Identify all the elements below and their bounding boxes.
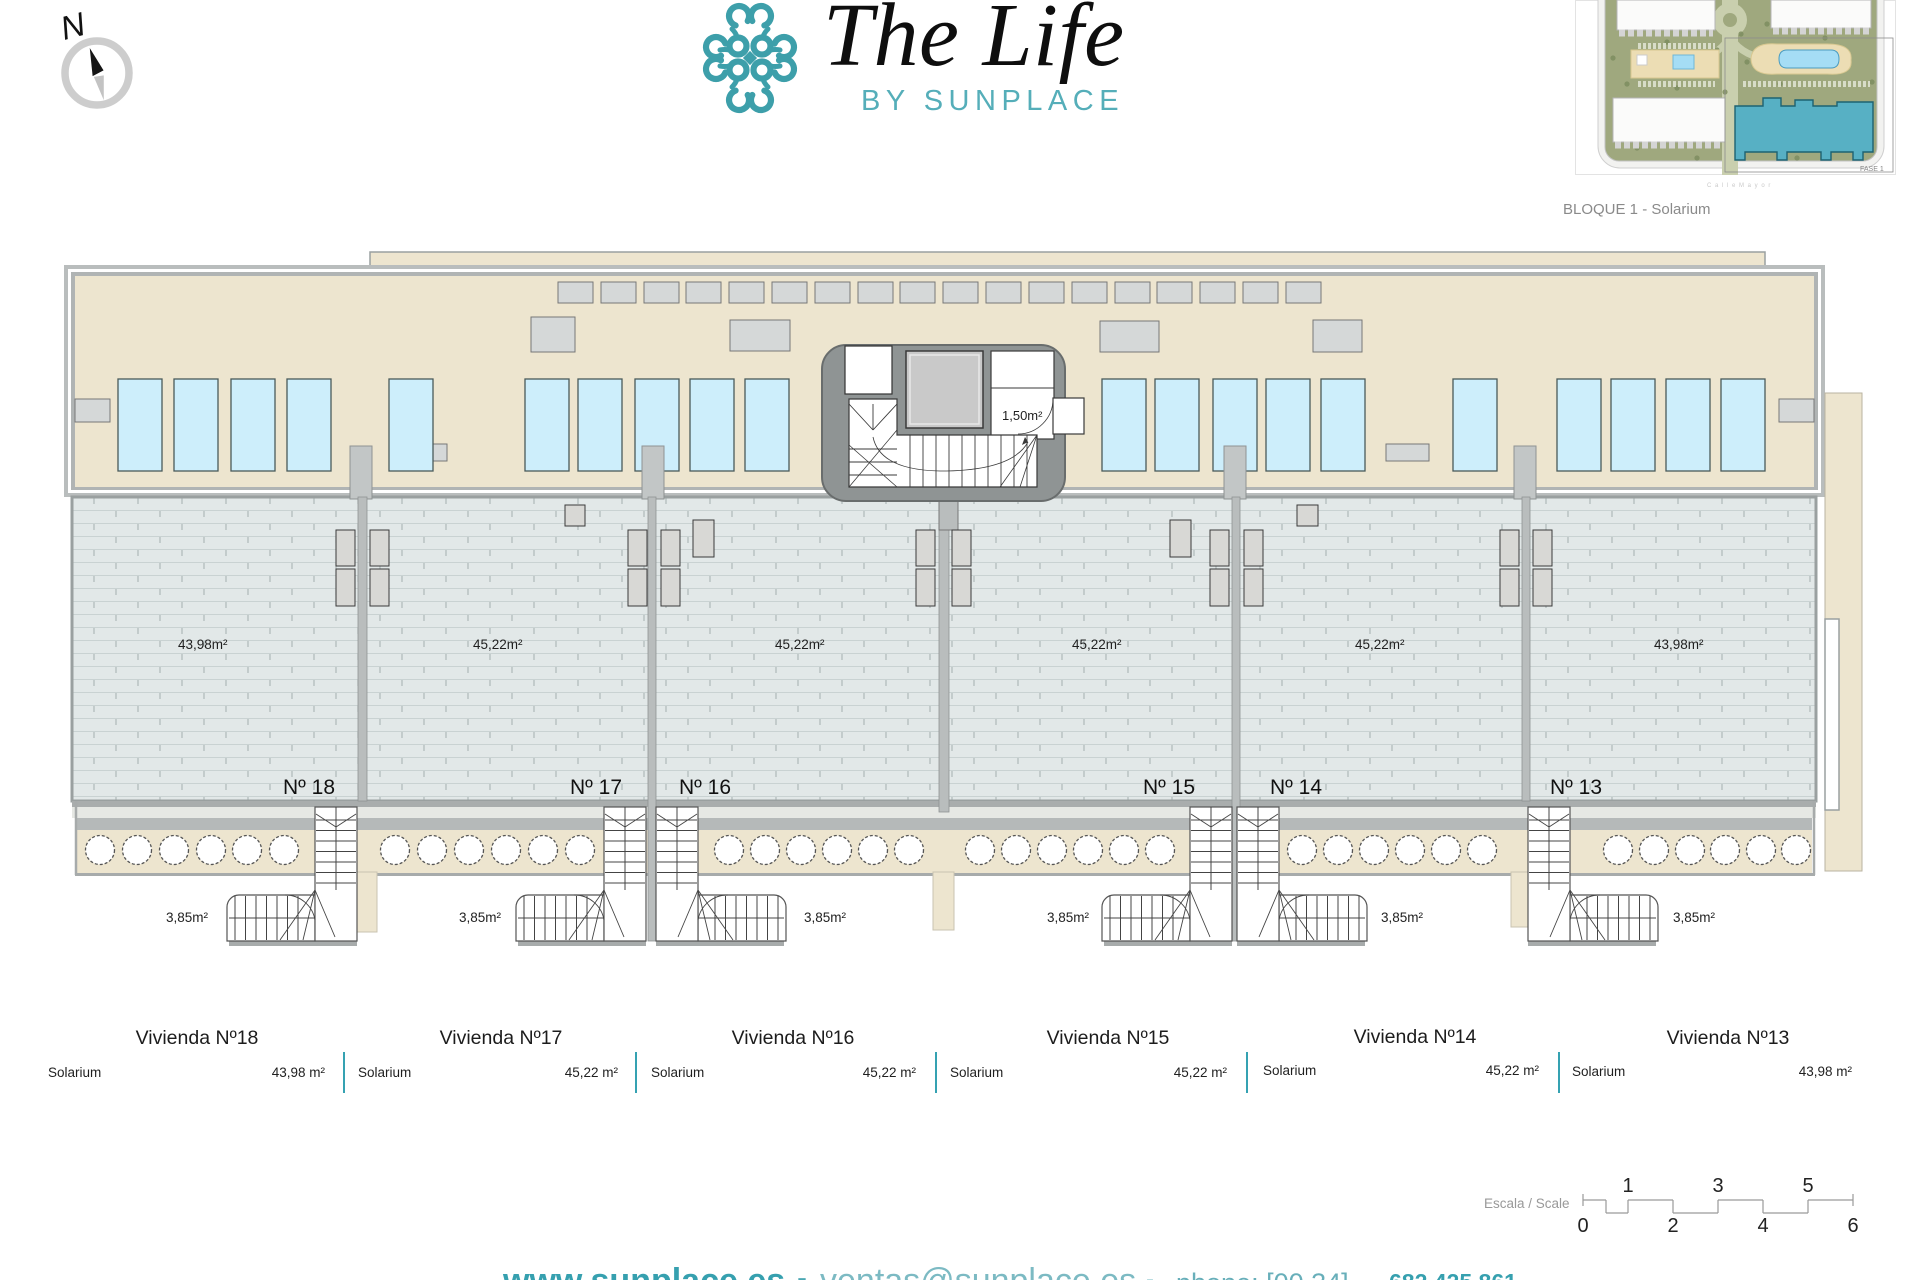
svg-text:C a l l e M a y o r: C a l l e M a y o r <box>1707 183 1771 189</box>
svg-text:N: N <box>56 5 89 47</box>
svg-text:FASE 1: FASE 1 <box>1860 166 1884 173</box>
